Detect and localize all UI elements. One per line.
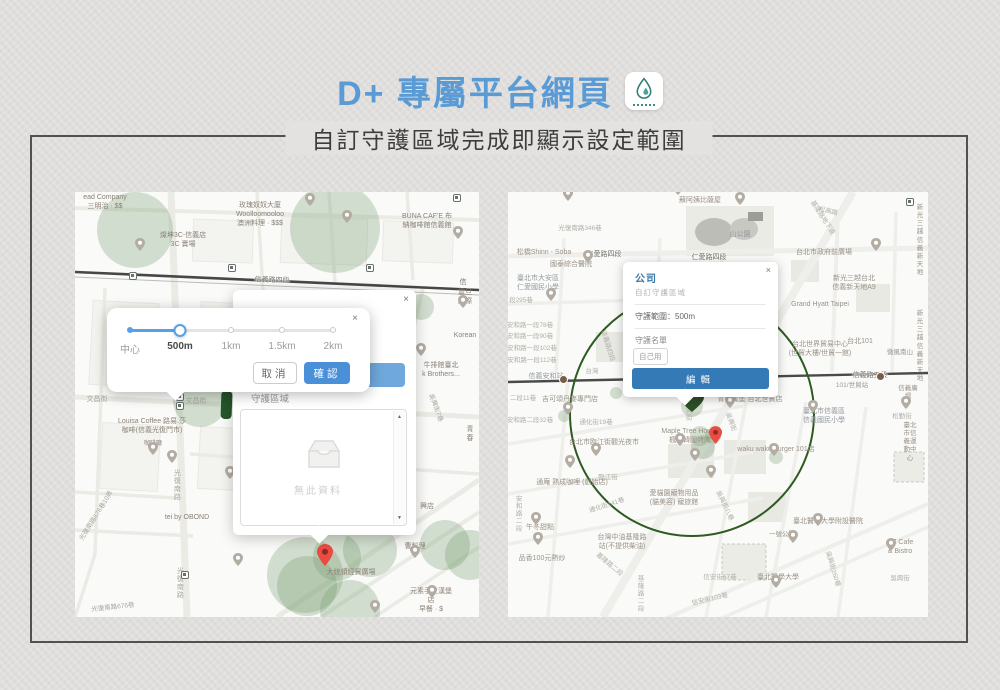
right-map-markers	[508, 192, 928, 617]
scroll-down-icon[interactable]: ▼	[394, 515, 405, 521]
divider	[635, 304, 766, 305]
scroll-up-icon[interactable]: ▲	[394, 414, 405, 420]
guard-range-text: 守護範圍：500m	[635, 311, 695, 322]
water-drop-icon	[633, 76, 655, 102]
app-logo-icon	[625, 72, 663, 110]
page-title: D+ 專屬平台網頁	[337, 66, 613, 115]
guard-area-list: 無此資料 ▲ ▼	[240, 409, 407, 526]
content-frame: 自訂守護區域完成即顯示設定範圍	[30, 135, 968, 643]
guard-area-title: 公司	[635, 270, 657, 285]
guard-tag-chip: 自己用	[633, 348, 668, 365]
edit-button[interactable]: 編輯	[632, 368, 769, 389]
guard-list-label: 守護名單	[635, 335, 667, 346]
slider-thumb[interactable]	[174, 324, 187, 337]
guard-area-info-popup: × 公司 自訂守護區域 守護範圍：500m 守護名單 自己用 編輯	[623, 262, 778, 397]
guard-area-subtitle: 自訂守護區域	[635, 287, 686, 298]
location-pin-icon[interactable]	[709, 426, 722, 449]
guard-area-marker-icon[interactable]	[221, 391, 233, 419]
divider	[635, 328, 766, 329]
slider-tick-label: 1.5km	[268, 341, 295, 352]
close-icon[interactable]: ×	[403, 295, 409, 305]
slider-tick-label: 中心	[120, 341, 140, 356]
right-map-panel[interactable]: 蘇阿姨比薩屋光復南路346巷山公園松高路基隆路地下道新光三越 信義新天地仁愛路四…	[508, 192, 928, 617]
empty-inbox-icon	[304, 438, 344, 475]
slider-fill	[130, 329, 180, 332]
range-slider-popup: × 中心500m1km1.5km2km 取消 確認	[107, 308, 370, 392]
left-map-panel[interactable]: ead Company 三明治 · $$玫瑰奴奴大廈 Woolloomooloo…	[75, 192, 479, 617]
slider-tick[interactable]	[279, 327, 285, 333]
logo-caption	[633, 104, 655, 106]
slider-tick[interactable]	[330, 327, 336, 333]
slider-tick-label: 1km	[222, 341, 241, 352]
empty-state-text: 無此資料	[241, 482, 395, 497]
guard-area-section-label: 守護區域	[251, 391, 289, 405]
close-icon[interactable]: ×	[766, 266, 771, 275]
slider-tick[interactable]	[228, 327, 234, 333]
header: D+ 專屬平台網頁	[0, 66, 1000, 115]
slider-tick-label: 500m	[167, 341, 193, 352]
slider-tick-label: 2km	[324, 341, 343, 352]
close-icon[interactable]: ×	[352, 314, 358, 324]
slider-tick[interactable]	[127, 327, 133, 333]
scrollbar[interactable]: ▲ ▼	[393, 411, 405, 524]
cancel-button[interactable]: 取消	[253, 362, 297, 384]
confirm-button[interactable]: 確認	[304, 362, 350, 384]
page-subtitle: 自訂守護區域完成即顯示設定範圍	[286, 121, 713, 155]
location-pin-icon[interactable]	[317, 544, 333, 571]
